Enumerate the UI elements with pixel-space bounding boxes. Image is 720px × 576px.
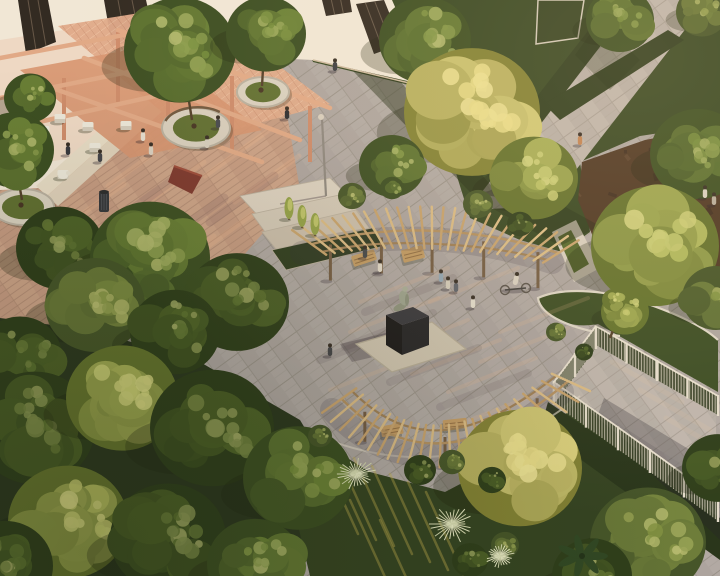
aerial-plaza-rendering	[0, 0, 720, 576]
render-canvas	[0, 0, 720, 576]
colour-grade	[0, 0, 720, 576]
